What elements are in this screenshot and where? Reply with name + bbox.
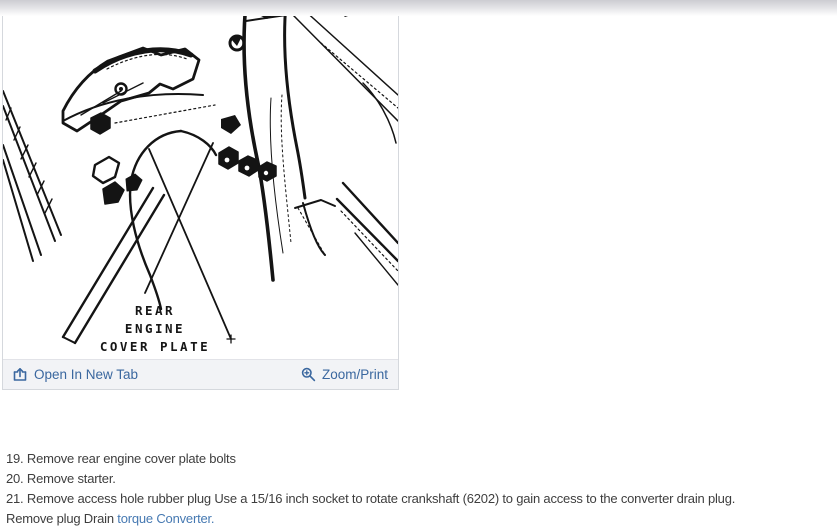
figure-toolbar: Open In New Tab Zoom/Print [3,359,398,389]
center-channel [219,3,357,280]
engine-diagram: REAR ENGINE COVER PLATE [3,3,398,359]
diagram-label-line-3: COVER PLATE [100,339,210,354]
open-in-new-tab-link[interactable]: Open In New Tab [13,367,138,382]
engine-diagram-canvas[interactable]: REAR ENGINE COVER PLATE [3,3,398,359]
zoom-print-link[interactable]: Zoom/Print [301,367,388,382]
upper-right-rails [270,9,398,253]
step-22: Remove plug Drain torque Converter. [6,509,836,529]
magnifier-zoom-plus-icon [301,367,316,382]
torque-converter-link[interactable]: torque Converter. [117,511,214,526]
diagram-label-line-2: ENGINE [125,321,185,336]
open-in-new-tab-label: Open In New Tab [34,367,138,382]
figure-panel: REAR ENGINE COVER PLATE Open In New Tab [2,2,399,390]
left-frame-member [3,91,61,261]
right-rail-group [295,183,398,285]
step-22-text: Remove plug Drain [6,511,117,526]
step-21: 21. Remove access hole rubber plug Use a… [6,489,836,509]
top-divider-gradient [0,0,837,16]
open-in-new-tab-icon [13,367,28,382]
diagram-label-line-1: REAR [135,303,175,318]
instruction-steps: 19. Remove rear engine cover plate bolts… [6,449,836,529]
zoom-print-label: Zoom/Print [322,367,388,382]
page: REAR ENGINE COVER PLATE Open In New Tab [0,0,837,530]
upper-bracket-assembly [63,36,244,134]
step-19: 19. Remove rear engine cover plate bolts [6,449,836,469]
step-20: 20. Remove starter. [6,469,836,489]
access-plug-outline [130,131,216,309]
diagram-label: REAR ENGINE COVER PLATE [100,303,210,354]
